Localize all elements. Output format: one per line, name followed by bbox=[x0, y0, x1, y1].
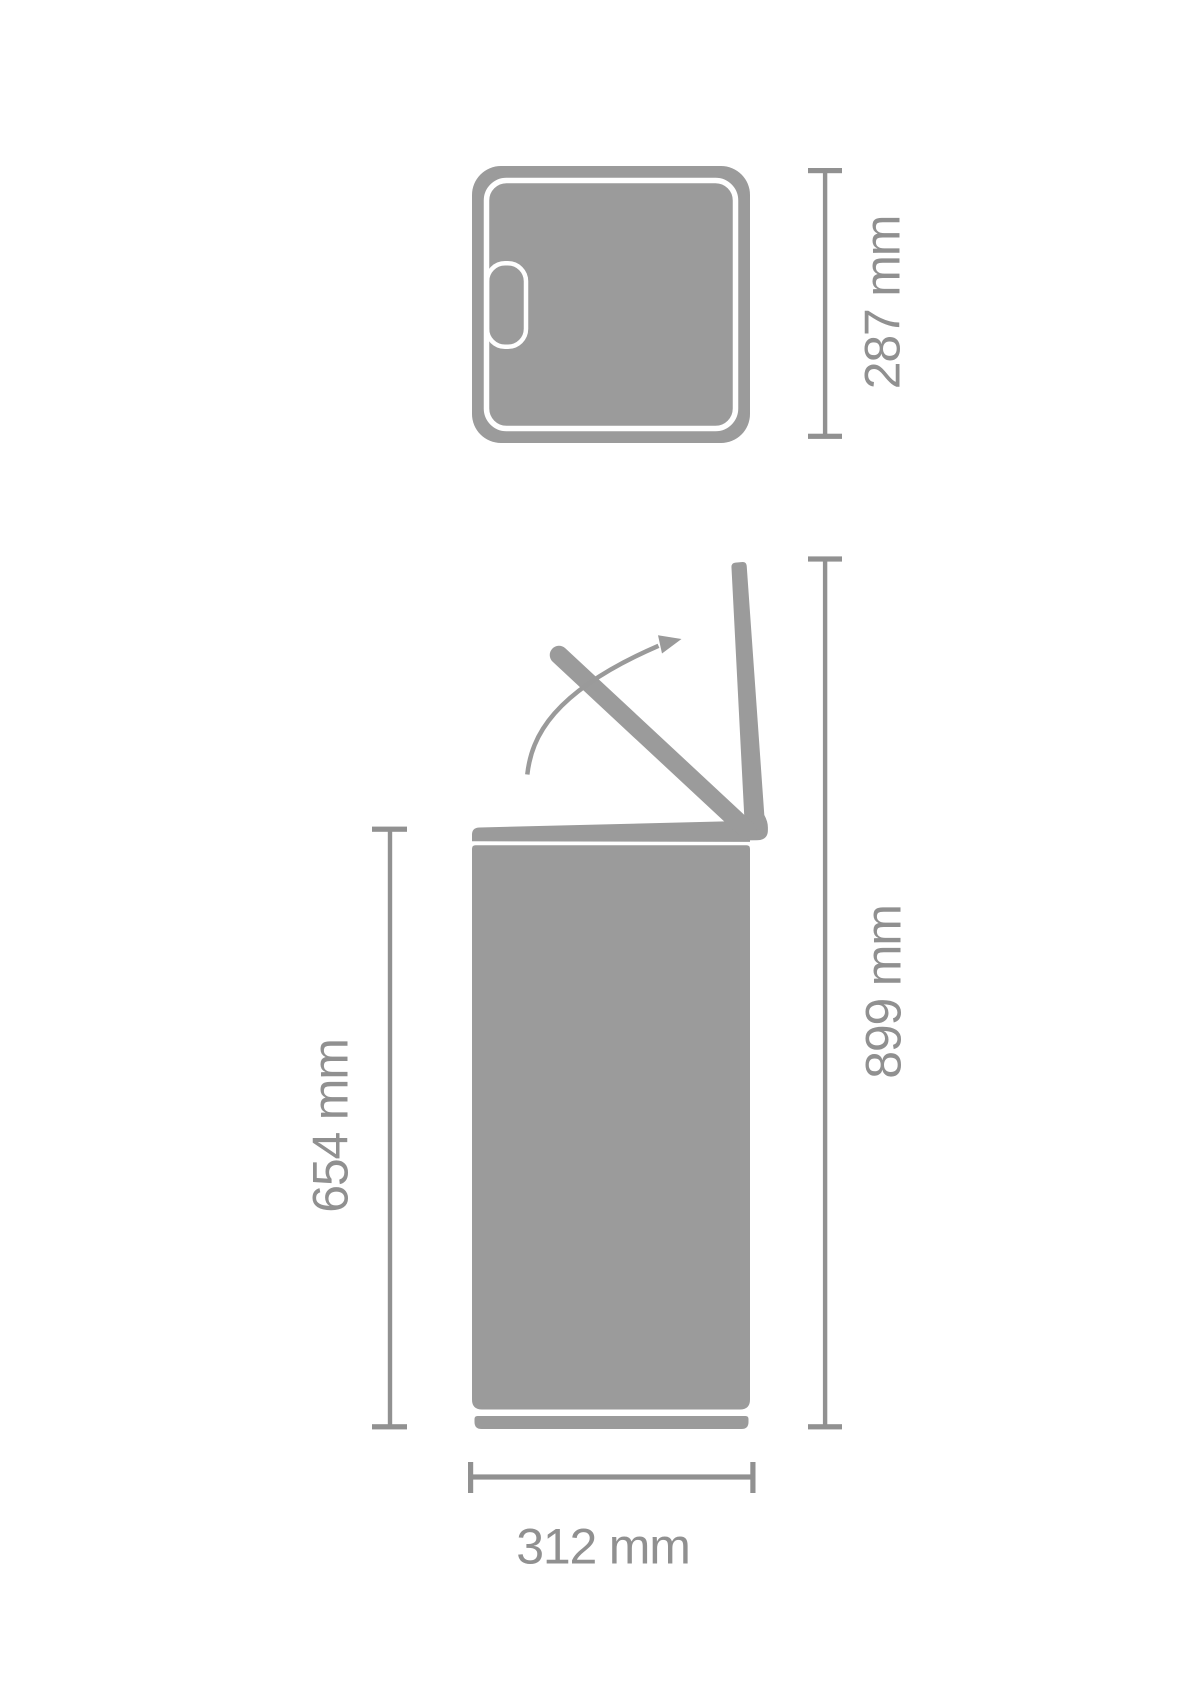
svg-text:654 mm: 654 mm bbox=[303, 1039, 359, 1212]
svg-text:312 mm: 312 mm bbox=[516, 1519, 689, 1575]
svg-text:899 mm: 899 mm bbox=[856, 905, 912, 1078]
svg-text:287 mm: 287 mm bbox=[855, 216, 911, 389]
